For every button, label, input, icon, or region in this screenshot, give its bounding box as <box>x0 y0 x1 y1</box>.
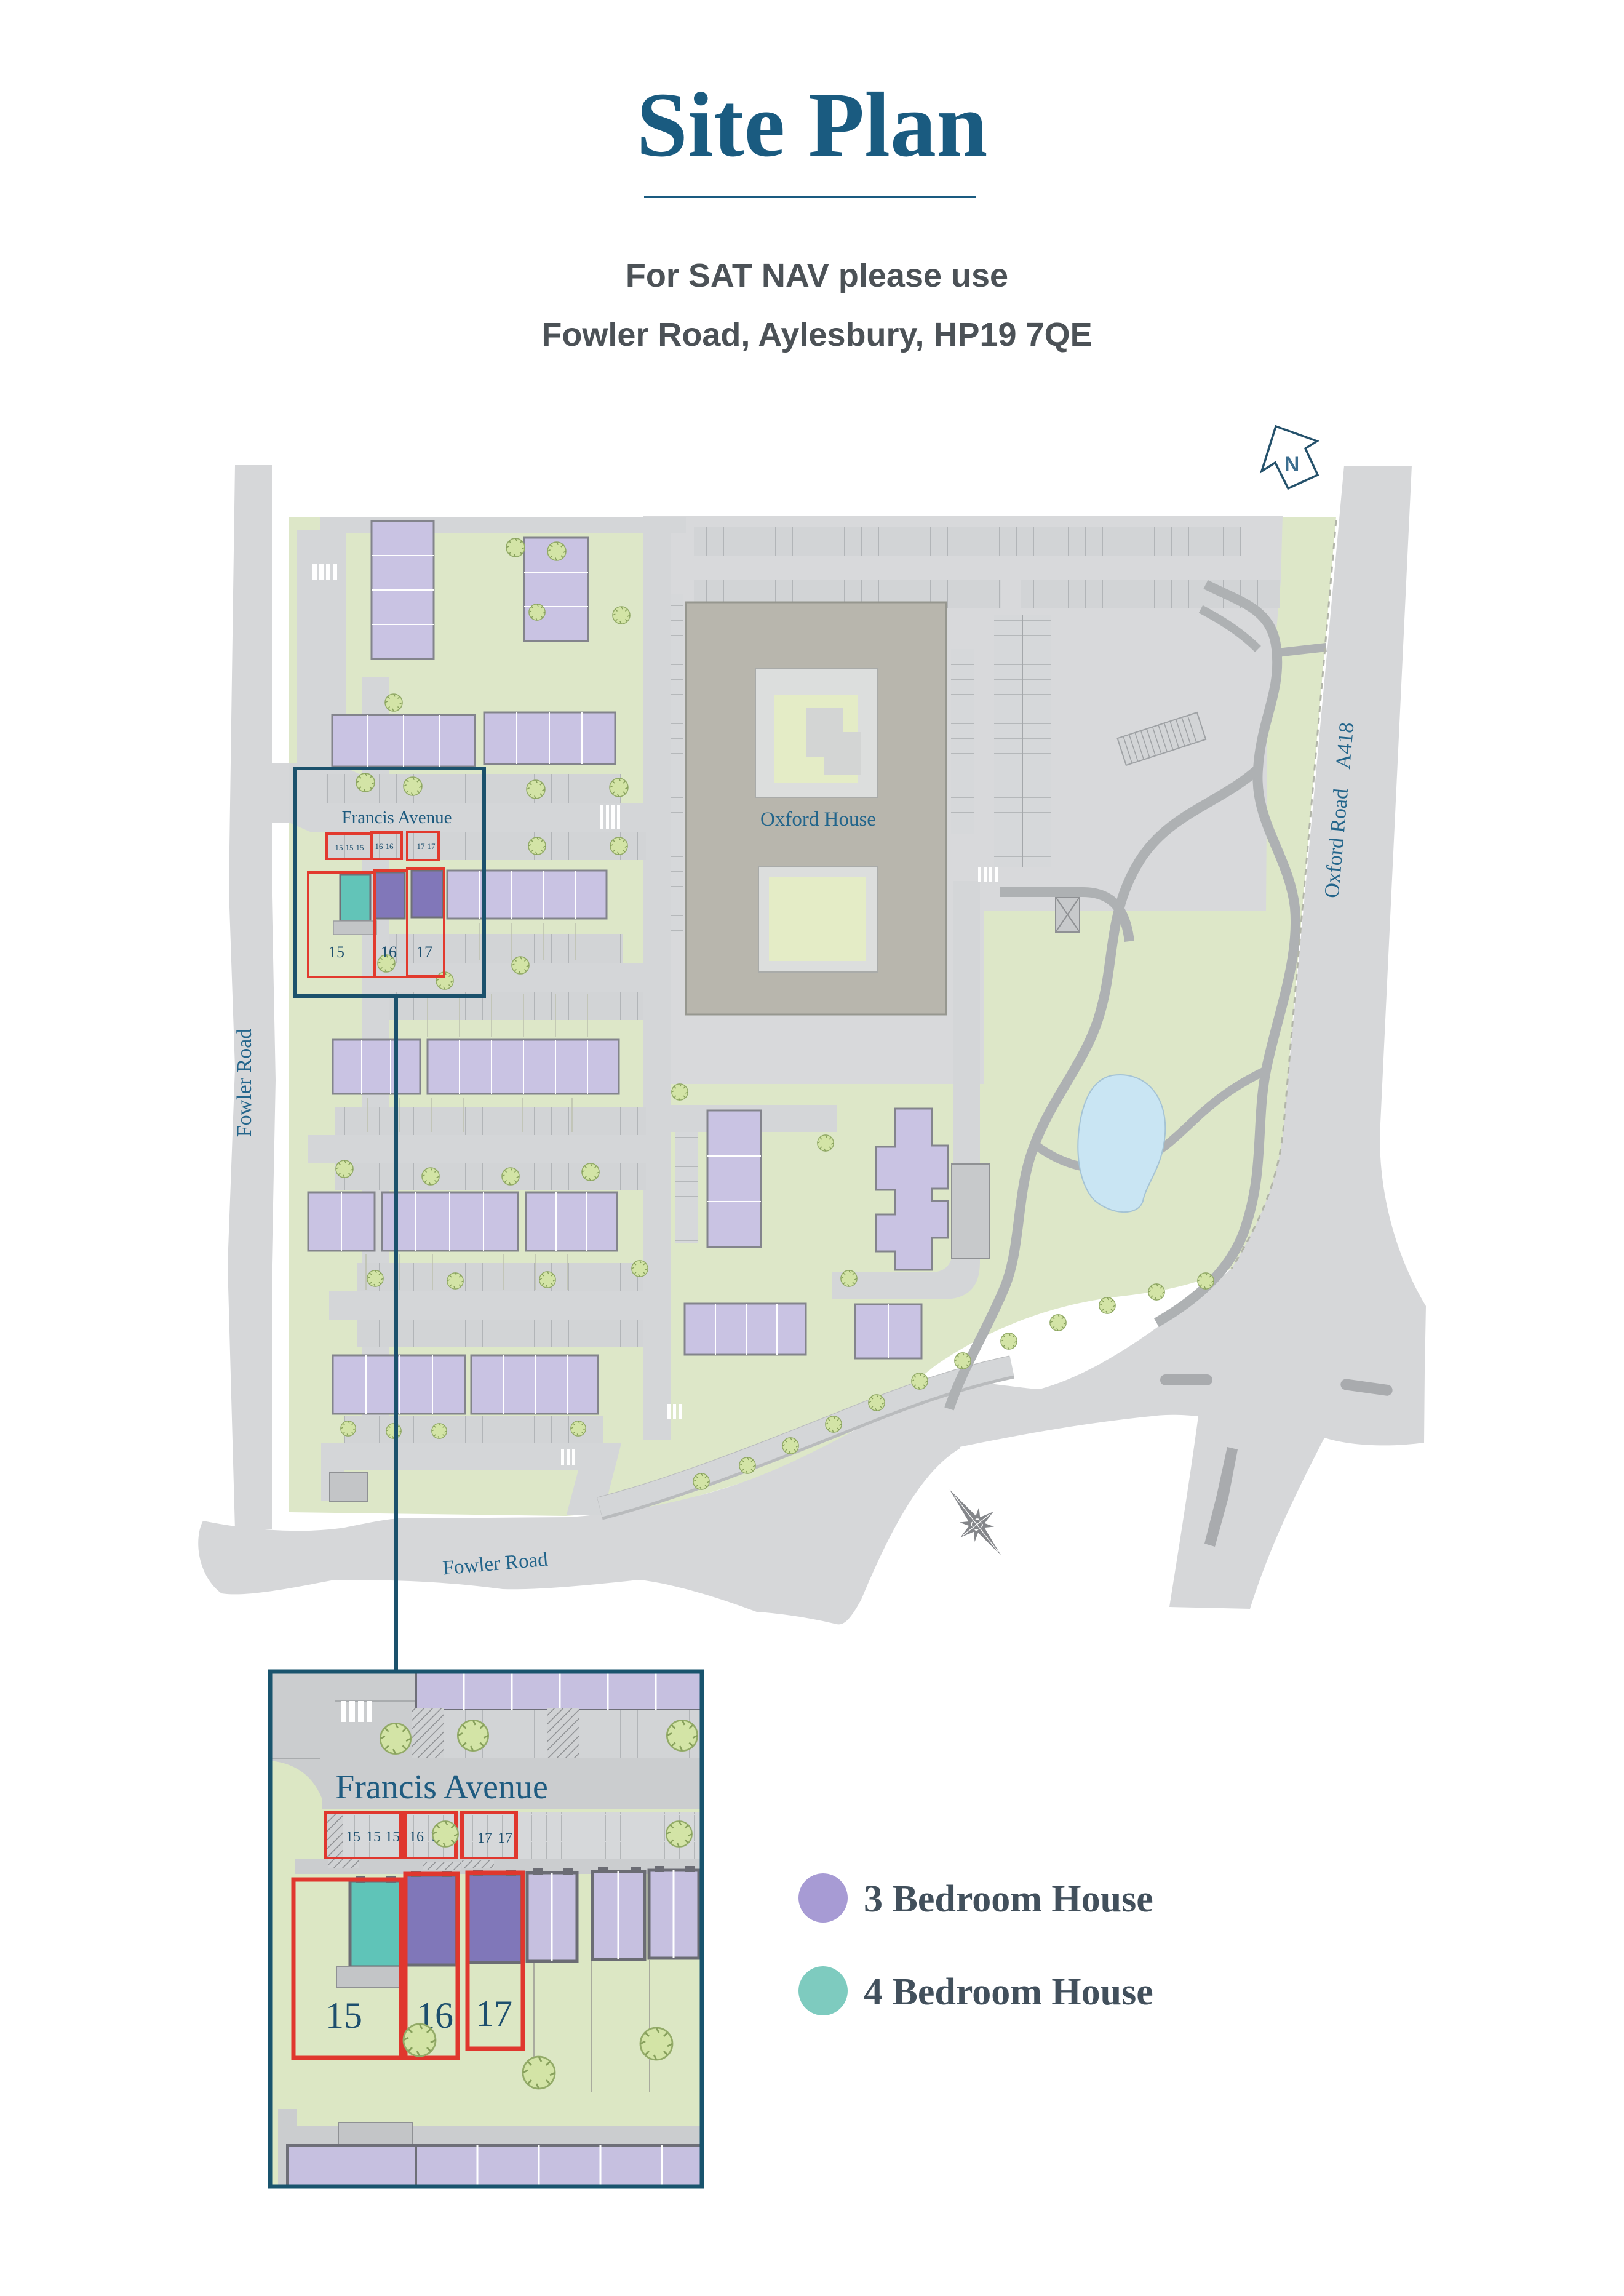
svg-text:17: 17 <box>476 1993 512 2034</box>
svg-text:17: 17 <box>428 842 436 851</box>
svg-text:17: 17 <box>417 842 426 851</box>
svg-text:15: 15 <box>366 1829 381 1845</box>
svg-text:15: 15 <box>328 943 344 961</box>
svg-text:17: 17 <box>477 1830 492 1846</box>
svg-text:16: 16 <box>386 842 394 851</box>
svg-text:Fowler Road: Fowler Road <box>233 1029 256 1138</box>
svg-text:17: 17 <box>498 1830 512 1846</box>
svg-text:15: 15 <box>356 843 364 852</box>
svg-text:3 Bedroom House: 3 Bedroom House <box>864 1878 1153 1920</box>
svg-text:Francis Avenue: Francis Avenue <box>335 1768 548 1806</box>
svg-text:For SAT NAV please use: For SAT NAV please use <box>626 257 1008 294</box>
svg-text:16: 16 <box>375 842 384 851</box>
svg-text:N: N <box>1284 453 1300 476</box>
svg-text:17: 17 <box>416 943 432 961</box>
svg-text:Francis Avenue: Francis Avenue <box>341 808 452 827</box>
svg-text:15: 15 <box>385 1829 400 1845</box>
svg-text:16: 16 <box>409 1829 424 1845</box>
svg-text:Fowler Road, Aylesbury, HP19 7: Fowler Road, Aylesbury, HP19 7QE <box>541 316 1092 353</box>
svg-text:Oxford House: Oxford House <box>760 808 876 831</box>
svg-text:15: 15 <box>346 843 354 852</box>
svg-text:16: 16 <box>381 943 397 961</box>
svg-text:15: 15 <box>335 843 343 852</box>
svg-text:4 Bedroom House: 4 Bedroom House <box>864 1971 1153 2013</box>
svg-text:Site Plan: Site Plan <box>637 74 988 176</box>
svg-text:15: 15 <box>346 1829 360 1845</box>
svg-text:15: 15 <box>325 1995 362 2036</box>
